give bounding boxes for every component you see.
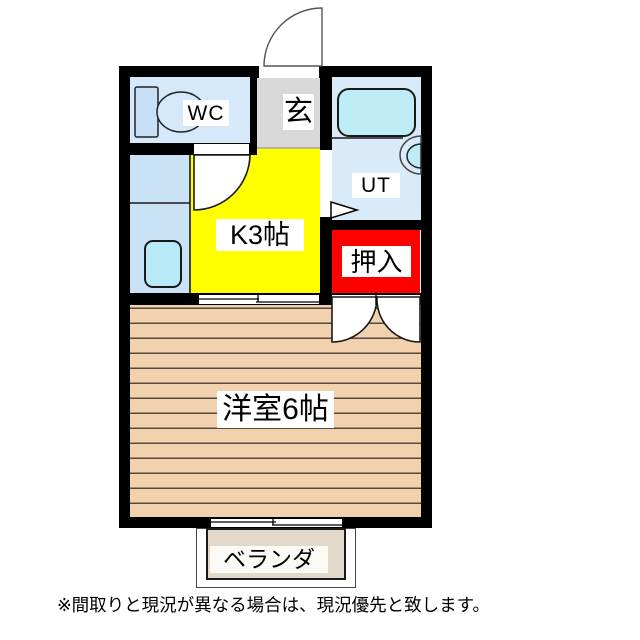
closet-door-opening	[332, 293, 420, 305]
balcony-label: ベランダ	[210, 546, 328, 573]
wc-door-opening	[193, 143, 250, 155]
entrance-door-swing-icon	[264, 8, 322, 66]
main-room-label: 洋室6帖	[217, 391, 334, 428]
disclaimer-text: ※間取りと現況が異なる場合は、現況優先と致します。	[57, 592, 490, 617]
wall-utility-closet	[331, 220, 421, 230]
floor-plan: WC 玄 UT K3帖 押入 洋室6帖 ベランダ ※間取りと現況が異なる場合は、…	[0, 0, 640, 640]
utility-door-opening	[320, 150, 332, 217]
closet-label: 押入	[342, 246, 411, 277]
utility-label: UT	[352, 173, 400, 198]
wc-label: WC	[183, 100, 229, 126]
balcony-window-icon	[210, 518, 343, 528]
kitchen-window-icon	[198, 294, 320, 305]
kitchen-label: K3帖	[216, 219, 304, 251]
entrance-label: 玄	[283, 94, 314, 130]
wall-wc-right	[250, 77, 257, 143]
entrance-door-opening	[257, 66, 321, 78]
